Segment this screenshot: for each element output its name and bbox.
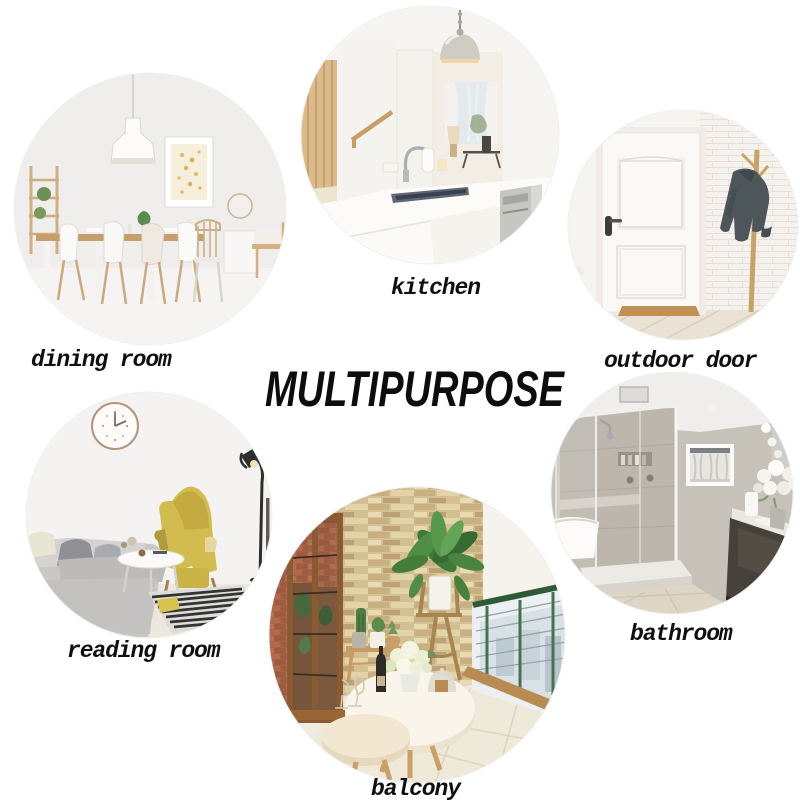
svg-text:MULTIPURPOSE: MULTIPURPOSE bbox=[265, 361, 565, 417]
svg-text:kitchen: kitchen bbox=[391, 275, 480, 301]
svg-text:bathroom: bathroom bbox=[630, 621, 733, 647]
svg-text:balcony: balcony bbox=[371, 776, 462, 800]
svg-text:dining room: dining room bbox=[31, 347, 172, 373]
svg-text:outdoor door: outdoor door bbox=[604, 348, 758, 374]
svg-text:reading room: reading room bbox=[67, 638, 221, 664]
